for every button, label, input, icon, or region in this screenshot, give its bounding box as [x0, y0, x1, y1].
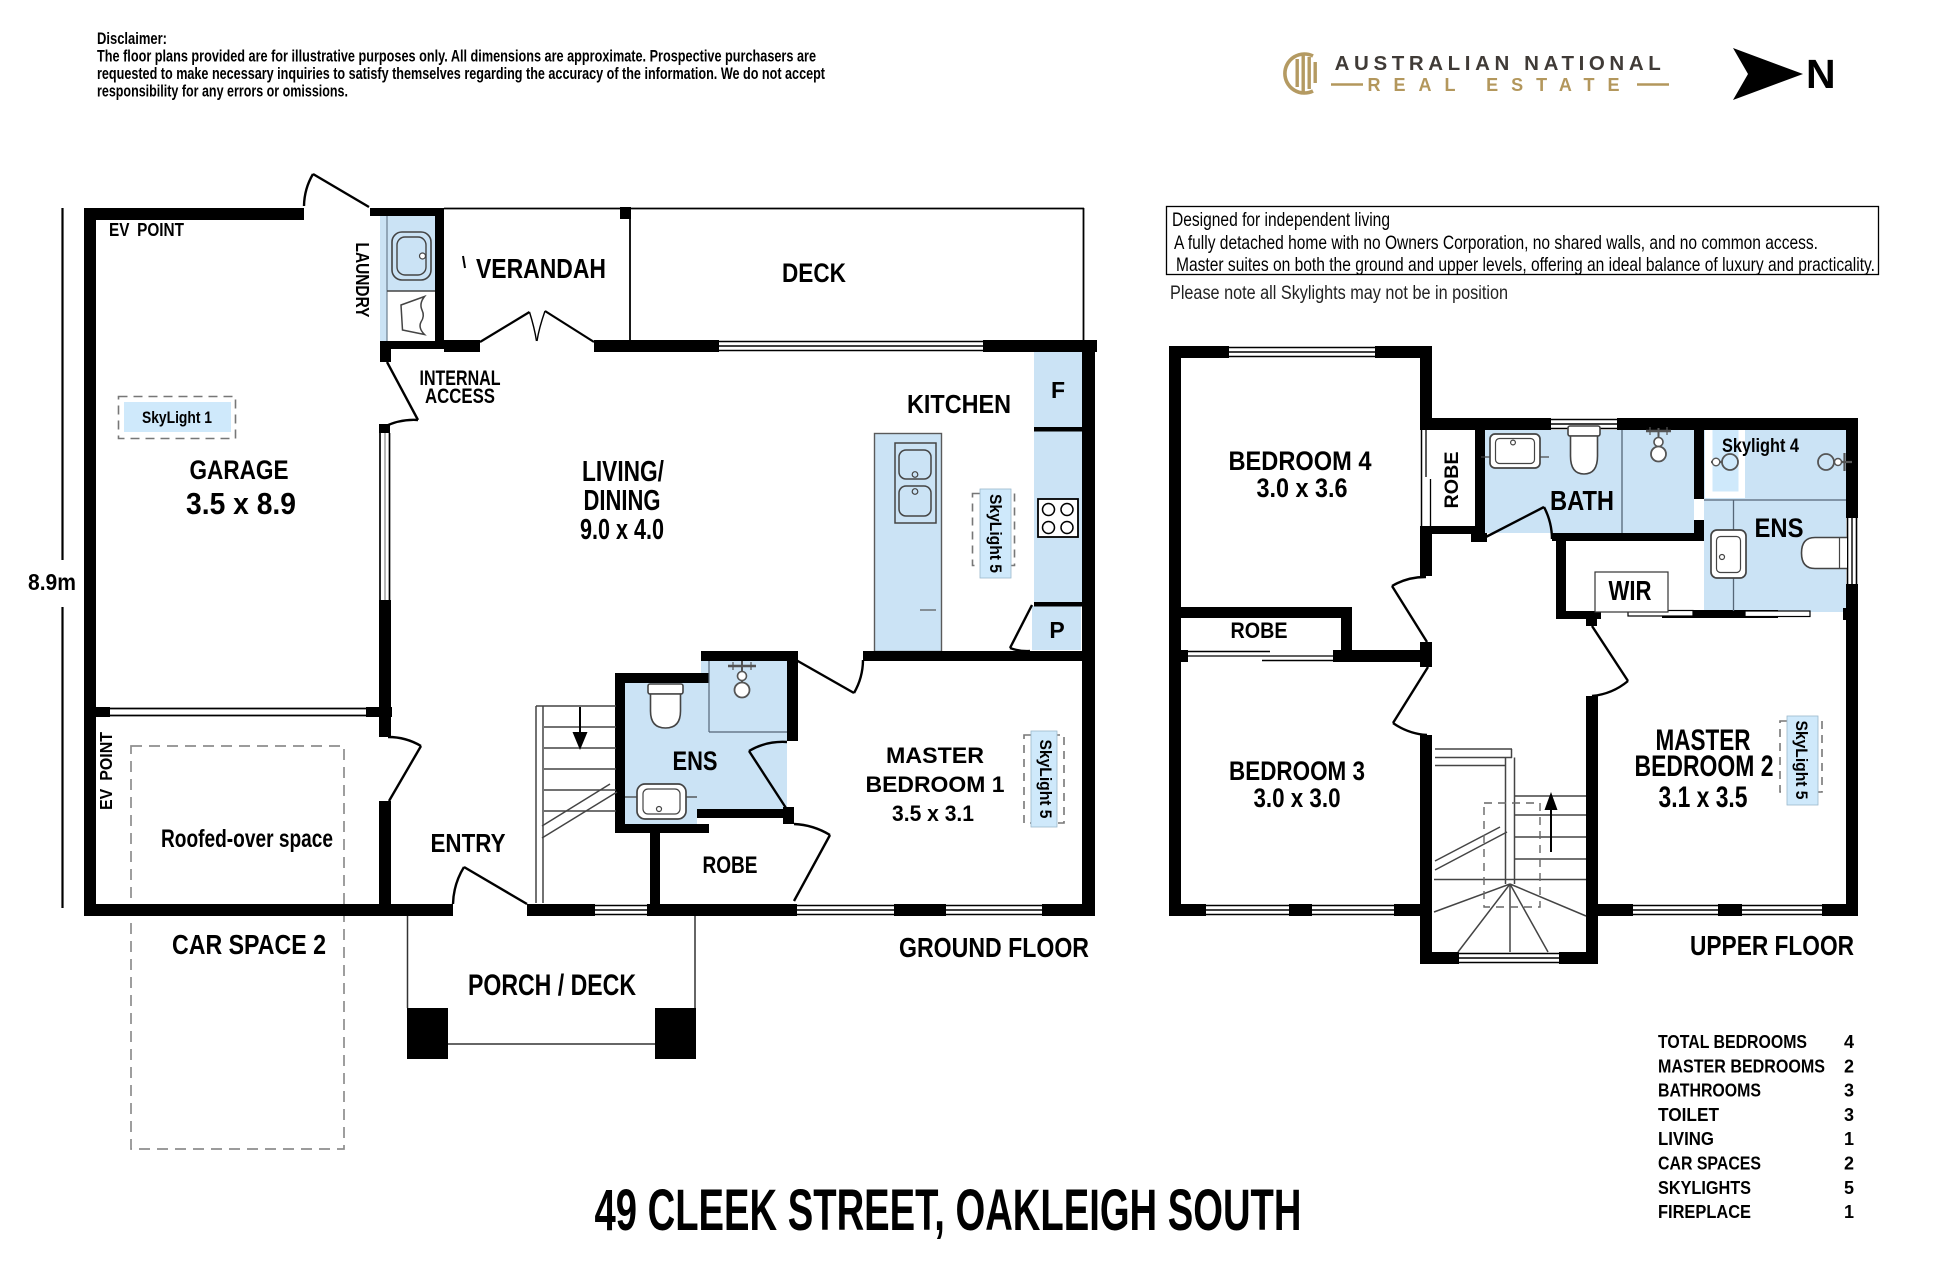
- svg-text:DINING: DINING: [584, 485, 661, 517]
- svg-text:FIREPLACE: FIREPLACE: [1658, 1202, 1751, 1222]
- svg-text:3.1 x 3.5: 3.1 x 3.5: [1659, 781, 1748, 814]
- svg-text:MASTER: MASTER: [886, 743, 984, 768]
- svg-text:SkyLight 5: SkyLight 5: [1792, 721, 1811, 800]
- svg-text:UPPER FLOOR: UPPER FLOOR: [1690, 930, 1854, 961]
- svg-text:TOTAL BEDROOMS: TOTAL BEDROOMS: [1658, 1032, 1807, 1052]
- svg-text:8.9m: 8.9m: [28, 569, 76, 595]
- svg-text:2: 2: [1844, 1056, 1854, 1076]
- svg-text:1: 1: [1844, 1129, 1854, 1149]
- svg-text:5: 5: [1844, 1178, 1854, 1198]
- svg-text:BATHROOMS: BATHROOMS: [1658, 1081, 1761, 1101]
- svg-text:TOILET: TOILET: [1658, 1105, 1719, 1125]
- svg-text:REAL ESTATE: REAL ESTATE: [1367, 75, 1632, 95]
- svg-text:The floor plans provided are f: The floor plans provided are for illustr…: [97, 47, 816, 66]
- svg-text:9.0 x 4.0: 9.0 x 4.0: [580, 514, 664, 546]
- svg-text:CAR SPACE 2: CAR SPACE 2: [172, 929, 326, 960]
- svg-text:ENS: ENS: [1755, 513, 1804, 543]
- svg-text:3.5 x 8.9: 3.5 x 8.9: [186, 486, 296, 521]
- svg-text:PORCH / DECK: PORCH / DECK: [468, 969, 636, 1002]
- svg-text:3: 3: [1844, 1105, 1854, 1125]
- svg-text:Please note all Skylights may: Please note all Skylights may not be in …: [1170, 283, 1508, 304]
- svg-text:ROBE: ROBE: [1442, 452, 1463, 509]
- svg-text:49 CLEEK STREET, OAKLEIGH SOUT: 49 CLEEK STREET, OAKLEIGH SOUTH: [595, 1178, 1302, 1243]
- svg-text:EV POINT: EV POINT: [96, 732, 116, 810]
- svg-text:requested to make necessary in: requested to make necessary inquiries to…: [97, 64, 825, 83]
- svg-text:2: 2: [1844, 1154, 1854, 1174]
- svg-text:GROUND FLOOR: GROUND FLOOR: [899, 932, 1089, 963]
- svg-text:SkyLight 5: SkyLight 5: [1036, 740, 1055, 819]
- svg-text:LIVING/: LIVING/: [582, 456, 664, 488]
- svg-text:Master suites on both the grou: Master suites on both the ground and upp…: [1176, 254, 1875, 276]
- svg-text:F: F: [1051, 377, 1065, 403]
- svg-text:EV POINT: EV POINT: [109, 220, 184, 240]
- svg-text:BATH: BATH: [1550, 485, 1614, 516]
- svg-text:Disclaimer:: Disclaimer:: [97, 29, 167, 48]
- svg-text:KITCHEN: KITCHEN: [907, 389, 1011, 419]
- svg-text:Roofed-over space: Roofed-over space: [161, 825, 333, 853]
- svg-text:3.5 x 3.1: 3.5 x 3.1: [892, 801, 974, 826]
- svg-text:ROBE: ROBE: [703, 852, 758, 879]
- svg-text:BEDROOM 2: BEDROOM 2: [1635, 750, 1774, 783]
- svg-text:Skylight 4: Skylight 4: [1722, 436, 1799, 457]
- svg-text:N: N: [1806, 51, 1836, 97]
- svg-text:LIVING: LIVING: [1658, 1129, 1714, 1149]
- svg-text:4: 4: [1844, 1032, 1854, 1052]
- svg-text:WIR: WIR: [1609, 575, 1652, 606]
- svg-text:ROBE: ROBE: [1231, 618, 1288, 643]
- svg-text:Designed for independent livin: Designed for independent living: [1172, 209, 1390, 231]
- svg-text:responsibility for any errors: responsibility for any errors or omissio…: [97, 82, 348, 101]
- svg-text:DECK: DECK: [782, 258, 846, 288]
- svg-text:AUSTRALIAN NATIONAL: AUSTRALIAN NATIONAL: [1335, 52, 1666, 75]
- svg-text:A fully detached home with no: A fully detached home with no Owners Cor…: [1174, 232, 1818, 254]
- svg-text:MASTER BEDROOMS: MASTER BEDROOMS: [1658, 1056, 1825, 1076]
- svg-text:P: P: [1049, 617, 1064, 643]
- svg-text:ACCESS: ACCESS: [425, 385, 495, 408]
- svg-text:BEDROOM 4: BEDROOM 4: [1229, 446, 1372, 476]
- svg-text:3.0 x 3.6: 3.0 x 3.6: [1257, 473, 1348, 503]
- svg-text:BEDROOM 3: BEDROOM 3: [1229, 756, 1365, 786]
- svg-text:SkyLight 5: SkyLight 5: [986, 494, 1005, 573]
- svg-text:GARAGE: GARAGE: [190, 455, 289, 485]
- svg-text:VERANDAH: VERANDAH: [476, 253, 606, 284]
- svg-text:ENTRY: ENTRY: [431, 828, 506, 858]
- svg-text:CAR SPACES: CAR SPACES: [1658, 1154, 1761, 1174]
- svg-text:3.0 x 3.0: 3.0 x 3.0: [1254, 783, 1341, 813]
- svg-text:LAUNDRY: LAUNDRY: [352, 243, 373, 319]
- svg-text:BEDROOM 1: BEDROOM 1: [866, 772, 1005, 797]
- svg-text:1: 1: [1844, 1202, 1854, 1222]
- svg-text:3: 3: [1844, 1081, 1854, 1101]
- svg-text:SKYLIGHTS: SKYLIGHTS: [1658, 1178, 1751, 1198]
- svg-text:ENS: ENS: [673, 746, 718, 776]
- svg-text:SkyLight 1: SkyLight 1: [142, 409, 212, 427]
